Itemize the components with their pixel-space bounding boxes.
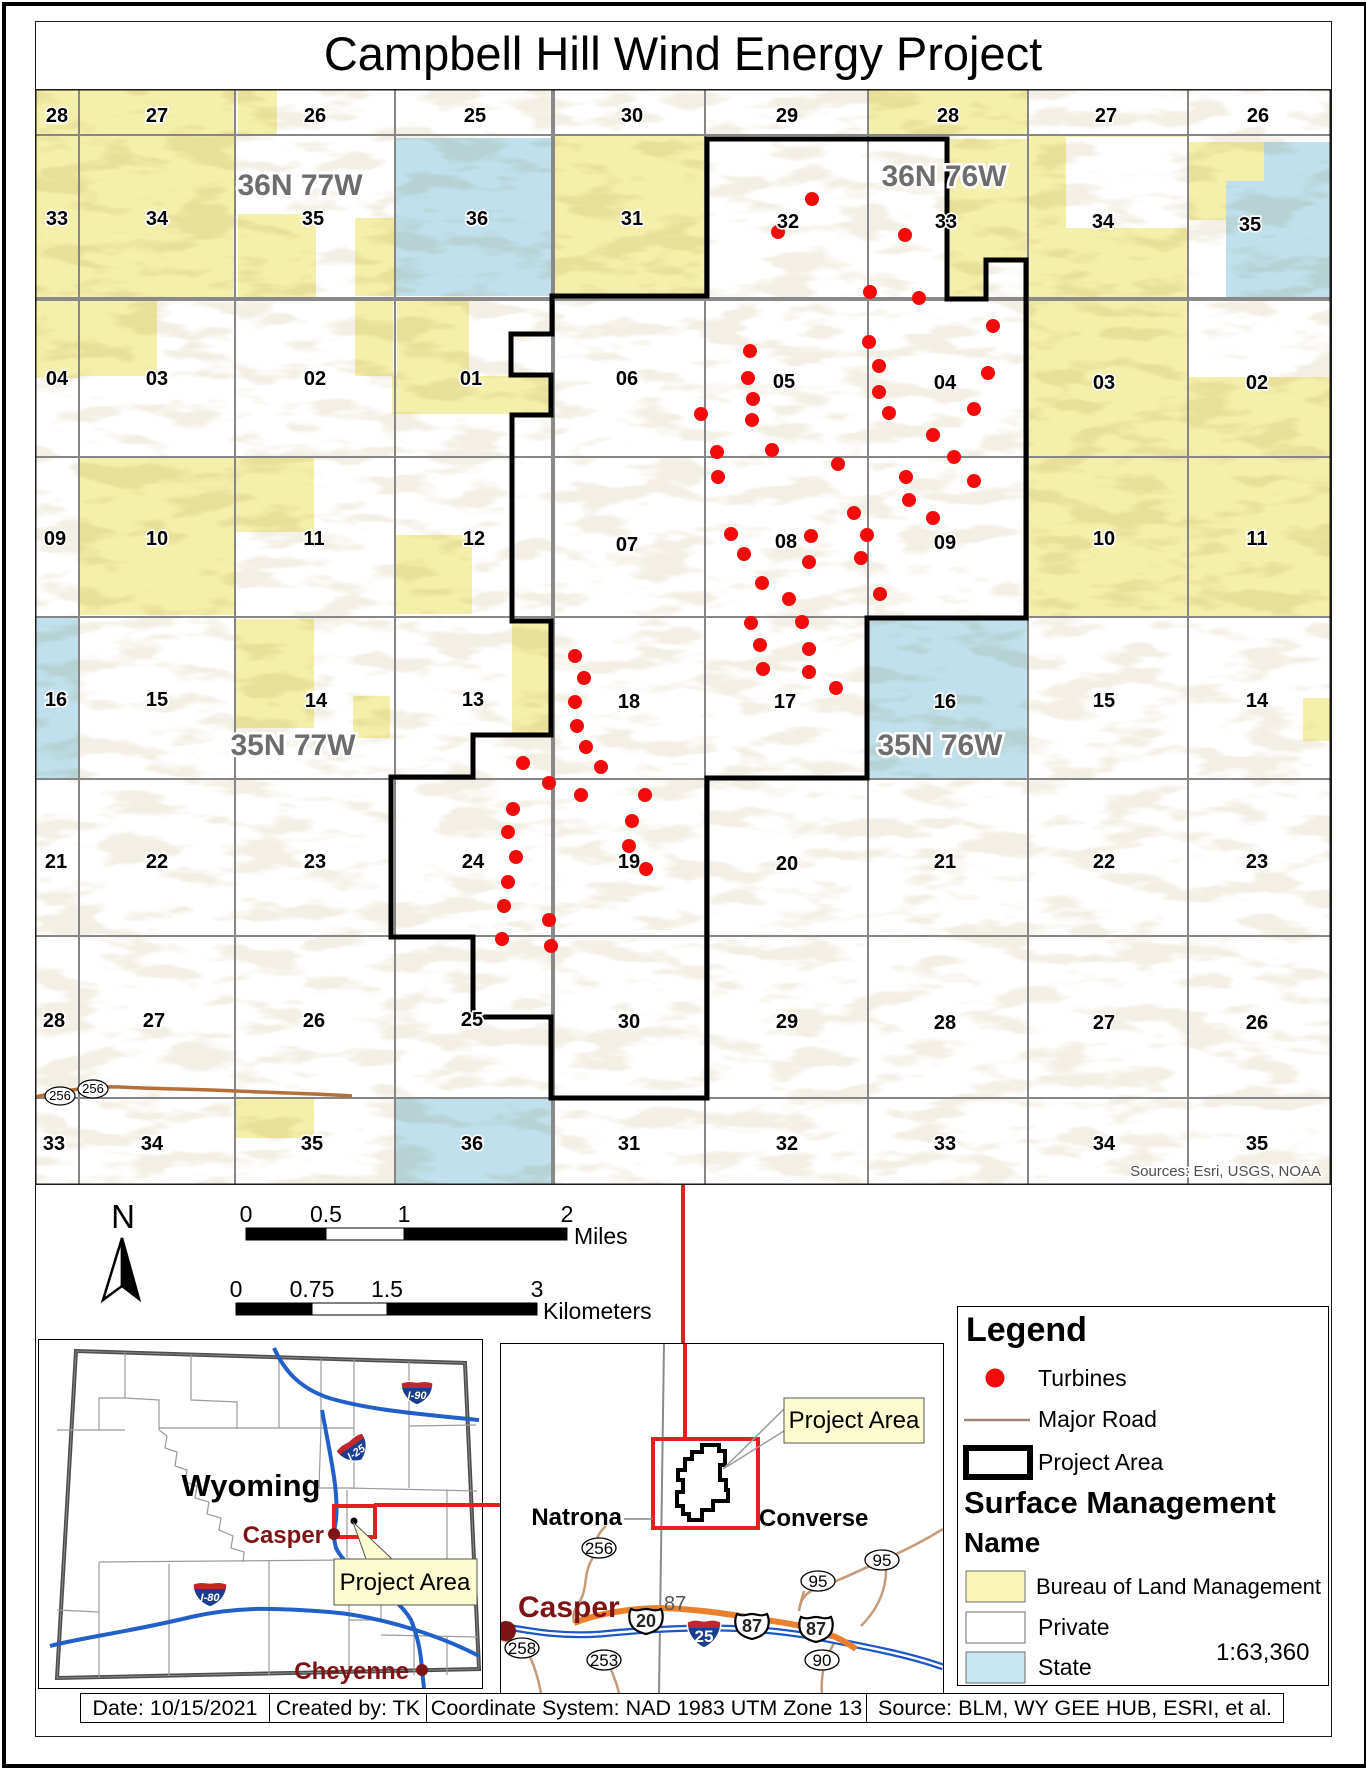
svg-text:24: 24 — [462, 851, 485, 873]
svg-text:18: 18 — [618, 691, 640, 713]
svg-text:35: 35 — [1239, 214, 1261, 236]
svg-text:36: 36 — [466, 208, 488, 230]
svg-text:Surface Management: Surface Management — [964, 1485, 1276, 1520]
svg-text:26: 26 — [1246, 1012, 1268, 1034]
svg-text:35: 35 — [302, 208, 324, 230]
svg-text:05: 05 — [773, 371, 795, 393]
svg-text:32: 32 — [777, 211, 799, 233]
svg-text:16: 16 — [45, 689, 67, 711]
svg-text:02: 02 — [1246, 372, 1268, 394]
svg-text:35N 77W: 35N 77W — [230, 729, 356, 762]
svg-text:30: 30 — [618, 1011, 640, 1033]
svg-text:Major Road: Major Road — [1038, 1406, 1157, 1432]
svg-text:Name: Name — [964, 1527, 1040, 1558]
svg-text:26: 26 — [304, 105, 326, 127]
svg-text:95: 95 — [809, 1572, 828, 1591]
svg-text:33: 33 — [935, 211, 957, 233]
svg-text:17: 17 — [774, 691, 796, 713]
svg-text:32: 32 — [776, 1133, 798, 1155]
svg-text:0.5: 0.5 — [310, 1201, 342, 1227]
svg-text:20: 20 — [776, 853, 798, 875]
svg-text:256: 256 — [585, 1539, 613, 1558]
svg-text:87: 87 — [742, 1616, 762, 1636]
svg-text:30: 30 — [621, 105, 643, 127]
svg-text:State: State — [1038, 1654, 1092, 1680]
svg-text:33: 33 — [43, 1133, 65, 1155]
svg-text:35: 35 — [1246, 1133, 1268, 1155]
svg-text:33: 33 — [46, 208, 68, 230]
svg-text:08: 08 — [775, 531, 797, 553]
svg-text:34: 34 — [141, 1133, 164, 1155]
svg-text:20: 20 — [636, 1611, 656, 1631]
svg-text:87: 87 — [664, 1593, 686, 1615]
svg-text:Miles: Miles — [574, 1223, 628, 1248]
svg-text:01: 01 — [460, 368, 482, 390]
svg-text:0.75: 0.75 — [290, 1276, 335, 1302]
svg-text:22: 22 — [146, 851, 168, 873]
svg-text:31: 31 — [621, 208, 643, 230]
svg-text:258: 258 — [508, 1639, 536, 1658]
svg-text:Project Area: Project Area — [340, 1569, 471, 1596]
svg-text:28: 28 — [43, 1010, 65, 1032]
svg-text:10: 10 — [1093, 528, 1115, 550]
svg-text:28: 28 — [934, 1012, 956, 1034]
svg-text:31: 31 — [618, 1133, 640, 1155]
svg-text:Casper: Casper — [518, 1591, 620, 1624]
svg-text:07: 07 — [616, 534, 638, 556]
svg-text:14: 14 — [1246, 690, 1269, 712]
svg-text:Cheyenne: Cheyenne — [294, 1658, 409, 1685]
svg-text:1:63,360: 1:63,360 — [1216, 1639, 1309, 1666]
svg-text:15: 15 — [146, 689, 168, 711]
svg-text:23: 23 — [304, 851, 326, 873]
svg-text:02: 02 — [304, 368, 326, 390]
svg-text:21: 21 — [934, 851, 956, 873]
svg-text:27: 27 — [143, 1010, 165, 1032]
svg-text:26: 26 — [303, 1010, 325, 1032]
svg-text:28: 28 — [46, 105, 68, 127]
svg-text:1.5: 1.5 — [371, 1276, 403, 1302]
svg-text:0: 0 — [230, 1276, 243, 1302]
svg-text:256: 256 — [49, 1088, 71, 1103]
svg-text:27: 27 — [1093, 1012, 1115, 1034]
svg-text:26: 26 — [1247, 105, 1269, 127]
svg-text:25: 25 — [461, 1009, 483, 1031]
svg-text:87: 87 — [806, 1619, 826, 1639]
svg-text:2: 2 — [561, 1201, 574, 1227]
svg-text:Project Area: Project Area — [789, 1407, 920, 1434]
svg-text:Turbines: Turbines — [1038, 1365, 1127, 1391]
svg-text:14: 14 — [305, 690, 328, 712]
svg-text:I-80: I-80 — [201, 1592, 221, 1604]
svg-text:23: 23 — [1246, 851, 1268, 873]
svg-text:253: 253 — [590, 1651, 618, 1670]
svg-text:34: 34 — [1093, 1133, 1116, 1155]
svg-text:Sources: Esri, USGS, NOAA: Sources: Esri, USGS, NOAA — [1130, 1163, 1321, 1180]
svg-text:Converse: Converse — [759, 1505, 868, 1532]
svg-text:0: 0 — [240, 1201, 253, 1227]
svg-text:I-90: I-90 — [408, 1390, 428, 1402]
svg-text:21: 21 — [45, 851, 67, 873]
svg-text:1: 1 — [398, 1201, 411, 1227]
svg-text:Kilometers: Kilometers — [543, 1298, 652, 1323]
svg-text:3: 3 — [531, 1276, 544, 1302]
svg-text:09: 09 — [934, 532, 956, 554]
svg-text:16: 16 — [934, 691, 956, 713]
svg-text:11: 11 — [303, 528, 324, 550]
svg-text:90: 90 — [813, 1651, 832, 1670]
svg-text:03: 03 — [1093, 372, 1115, 394]
svg-text:09: 09 — [44, 528, 66, 550]
svg-text:95: 95 — [873, 1551, 892, 1570]
svg-text:Project Area: Project Area — [1038, 1449, 1163, 1475]
svg-text:19: 19 — [618, 851, 640, 873]
svg-text:10: 10 — [146, 528, 168, 550]
svg-text:Private: Private — [1038, 1614, 1110, 1640]
svg-text:Natrona: Natrona — [531, 1504, 622, 1531]
svg-text:12: 12 — [463, 528, 485, 550]
svg-text:06: 06 — [616, 368, 638, 390]
svg-text:256: 256 — [82, 1081, 104, 1096]
svg-text:04: 04 — [46, 368, 69, 390]
svg-text:33: 33 — [934, 1133, 956, 1155]
svg-text:36: 36 — [461, 1133, 483, 1155]
svg-text:29: 29 — [776, 105, 798, 127]
svg-text:Legend: Legend — [966, 1311, 1087, 1349]
svg-text:Bureau of Land Management: Bureau of Land Management — [1036, 1574, 1321, 1599]
svg-text:N: N — [111, 1198, 135, 1235]
svg-text:11: 11 — [1246, 528, 1267, 550]
svg-text:34: 34 — [1092, 211, 1115, 233]
svg-text:03: 03 — [146, 368, 168, 390]
svg-text:04: 04 — [934, 372, 957, 394]
svg-text:36N 77W: 36N 77W — [237, 169, 363, 202]
svg-text:27: 27 — [146, 105, 168, 127]
svg-text:35N 76W: 35N 76W — [877, 729, 1003, 762]
svg-text:13: 13 — [462, 689, 484, 711]
svg-text:25: 25 — [695, 1627, 714, 1646]
svg-text:27: 27 — [1095, 105, 1117, 127]
svg-text:28: 28 — [937, 105, 959, 127]
svg-text:25: 25 — [464, 105, 486, 127]
svg-text:22: 22 — [1093, 851, 1115, 873]
svg-text:15: 15 — [1093, 690, 1115, 712]
svg-text:35: 35 — [301, 1133, 323, 1155]
svg-text:29: 29 — [776, 1011, 798, 1033]
svg-text:Wyoming: Wyoming — [182, 1468, 321, 1503]
svg-text:34: 34 — [146, 208, 169, 230]
svg-text:36N 76W: 36N 76W — [881, 160, 1007, 193]
svg-text:Casper: Casper — [243, 1522, 324, 1549]
